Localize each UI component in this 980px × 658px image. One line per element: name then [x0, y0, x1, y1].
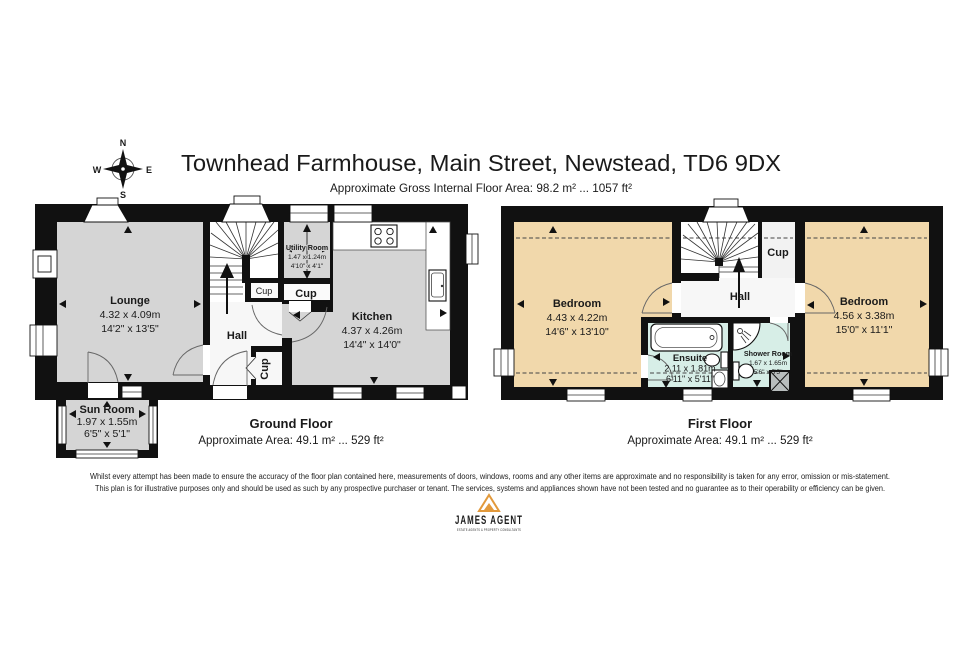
room-label-ensuite: Ensuite: [673, 353, 707, 364]
room-dims-utility-metric: 1.47 x 1.24m: [288, 254, 327, 261]
room-dims-sun-room-metric: 1.97 x 1.55m: [77, 416, 138, 428]
floor-area-ground: Approximate Area: 49.1 m² ... 529 ft²: [198, 435, 384, 447]
page-title: Townhead Farmhouse, Main Street, Newstea…: [181, 150, 781, 176]
brand-tagline: ESTATE AGENTS & PROPERTY CONSULTANTS: [457, 528, 521, 532]
room-dims-kitchen-imperial: 14'4" x 14'0": [343, 339, 401, 351]
footer-section: Whilst every attempt has been made to en…: [90, 472, 890, 532]
room-label-utility: Utility Room: [286, 243, 328, 252]
room-label-bedroom-left: Bedroom: [553, 298, 602, 310]
room-dims-lounge-metric: 4.32 x 4.09m: [100, 309, 161, 321]
room-dims-shower-room-metric: 1.67 x 1.65m: [749, 360, 788, 367]
kitchen-sink-icon: [429, 270, 446, 301]
brand-name: JAMES AGENT: [455, 515, 523, 527]
room-label-shower-room: Shower Room: [744, 349, 792, 358]
bath-icon: [651, 324, 722, 351]
compass-rose-icon: N E S W: [93, 138, 152, 200]
room-label-kitchen: Kitchen: [352, 311, 393, 323]
ground-floor-plan: Lounge 4.32 x 4.09m 14'2" x 13'5" Kitche…: [30, 196, 478, 458]
room-label-cup-under-stairs: Cup: [256, 286, 273, 296]
room-label-lounge: Lounge: [110, 295, 150, 307]
disclaimer-line-2: This plan is for illustrative purposes o…: [95, 484, 885, 493]
room-label-sun-room: Sun Room: [80, 404, 135, 416]
room-label-hall-gf: Hall: [227, 330, 247, 342]
room-dims-bedroom-right-metric: 4.56 x 3.38m: [834, 310, 895, 322]
floor-area-subtitle: Approximate Gross Internal Floor Area: 9…: [330, 181, 632, 195]
stove-icon: [371, 225, 397, 247]
room-label-hall-ff: Hall: [730, 291, 750, 303]
room-dims-bedroom-left-imperial: 14'6" x 13'10": [545, 326, 609, 338]
room-dims-shower-room-imperial: 5'6" x 5'5": [754, 369, 783, 376]
room-label-cup-hall: Cup: [259, 358, 271, 380]
room-label-cup-main: Cup: [295, 288, 317, 300]
floor-title-first: First Floor: [688, 416, 752, 431]
first-floor-plan: Bedroom 4.43 x 4.22m 14'6" x 13'10" Bedr…: [494, 199, 948, 447]
disclaimer-line-1: Whilst every attempt has been made to en…: [90, 472, 890, 481]
room-label-cup-ff: Cup: [767, 247, 789, 259]
fireplace-icon: [33, 250, 57, 278]
brand-logo: JAMES AGENT ESTATE AGENTS & PROPERTY CON…: [455, 495, 523, 532]
room-dims-ensuite-imperial: 6'11" x 5'11": [666, 374, 714, 384]
staircase-area-ff: [681, 222, 758, 278]
header-section: N E S W Townhead Farmhouse, Main Street,…: [93, 138, 782, 200]
hall-room: [210, 302, 282, 385]
room-dims-ensuite-metric: 2.11 x 1.81m: [664, 364, 715, 374]
compass-south-label: S: [120, 190, 126, 200]
compass-west-label: W: [93, 165, 102, 175]
room-dims-lounge-imperial: 14'2" x 13'5": [101, 323, 159, 335]
room-dims-bedroom-right-imperial: 15'0" x 11'1": [836, 324, 893, 336]
floor-title-ground: Ground Floor: [249, 416, 332, 431]
floor-area-first: Approximate Area: 49.1 m² ... 529 ft²: [627, 435, 813, 447]
room-dims-kitchen-metric: 4.37 x 4.26m: [342, 325, 403, 337]
room-dims-utility-imperial: 4'10" x 4'1": [291, 263, 324, 270]
compass-north-label: N: [120, 138, 127, 148]
room-dims-bedroom-left-metric: 4.43 x 4.22m: [547, 312, 608, 324]
compass-east-label: E: [146, 165, 152, 175]
room-label-bedroom-right: Bedroom: [840, 296, 889, 308]
floor-plan-page: N E S W Townhead Farmhouse, Main Street,…: [0, 0, 980, 653]
floor-plan-canvas: N E S W Townhead Farmhouse, Main Street,…: [0, 0, 980, 653]
agency-triangle-icon: [479, 495, 499, 511]
room-dims-sun-room-imperial: 6'5" x 5'1": [84, 428, 130, 440]
chimney-icon-ff: [703, 199, 749, 222]
